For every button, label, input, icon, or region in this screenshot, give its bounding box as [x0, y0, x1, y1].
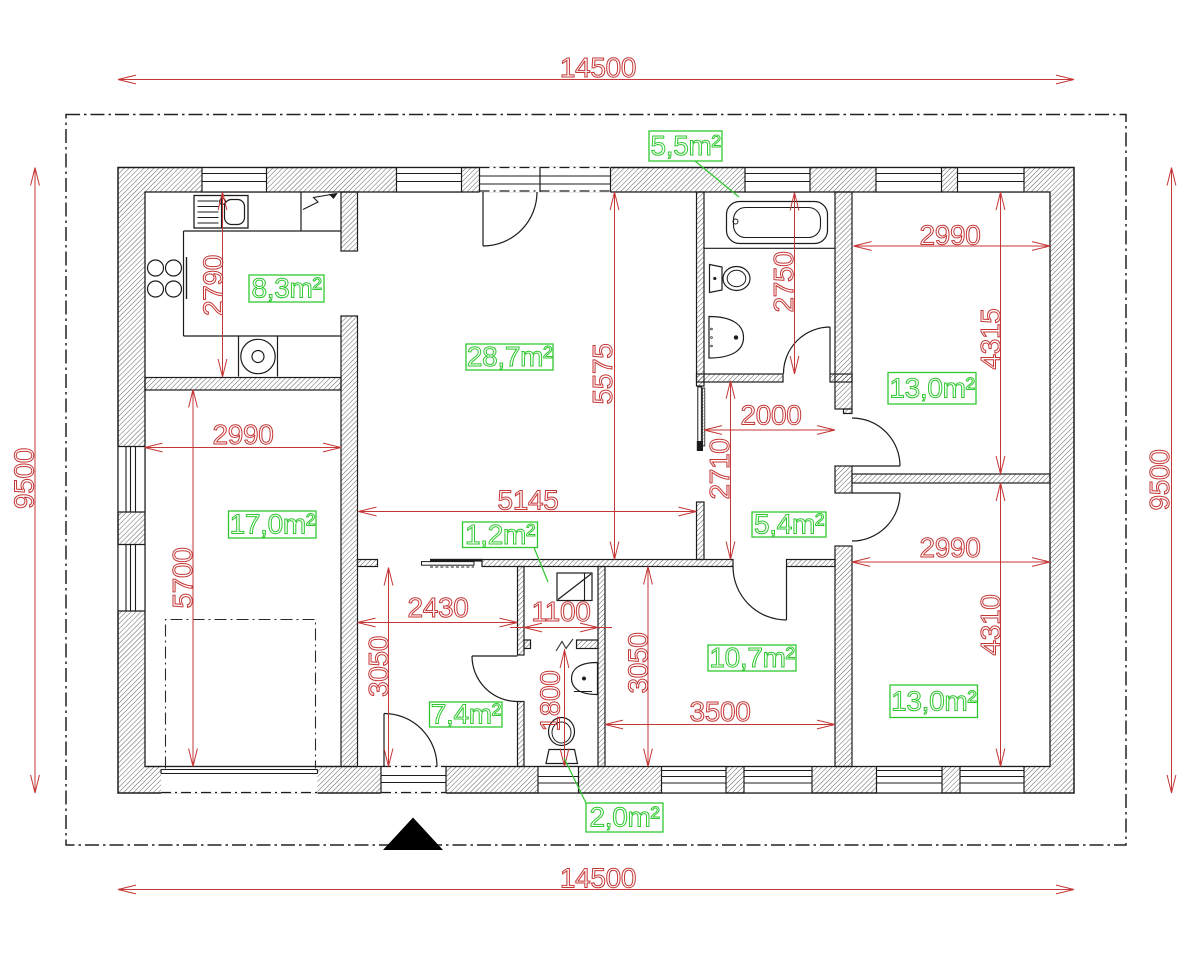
svg-text:9500: 9500 [1144, 449, 1175, 510]
svg-text:1,2m²: 1,2m² [465, 519, 535, 550]
svg-text:2990: 2990 [919, 532, 980, 563]
svg-text:4315: 4315 [975, 308, 1006, 369]
svg-text:5,5m²: 5,5m² [650, 130, 720, 161]
svg-text:5,4m²: 5,4m² [754, 509, 824, 540]
svg-text:14500: 14500 [560, 863, 636, 894]
svg-text:10,7m²: 10,7m² [709, 642, 794, 673]
svg-text:2,0m²: 2,0m² [589, 802, 659, 833]
svg-text:13,0m²: 13,0m² [889, 372, 974, 403]
svg-text:3050: 3050 [623, 632, 654, 693]
svg-text:5575: 5575 [587, 343, 618, 404]
svg-text:2430: 2430 [407, 592, 468, 623]
svg-text:17,0m²: 17,0m² [230, 509, 315, 540]
svg-text:14500: 14500 [560, 52, 636, 83]
svg-text:7,4m²: 7,4m² [431, 699, 501, 730]
svg-text:13,0m²: 13,0m² [891, 685, 976, 716]
svg-text:2990: 2990 [919, 220, 980, 251]
svg-text:2710: 2710 [704, 438, 735, 499]
svg-text:2000: 2000 [740, 400, 801, 431]
svg-text:1800: 1800 [535, 670, 566, 731]
svg-text:28,7m²: 28,7m² [467, 341, 552, 372]
svg-text:2750: 2750 [768, 251, 799, 312]
svg-text:3050: 3050 [363, 636, 394, 697]
svg-text:5700: 5700 [167, 547, 198, 608]
svg-text:8,3m²: 8,3m² [251, 273, 321, 304]
svg-text:3500: 3500 [689, 696, 750, 727]
svg-text:2790: 2790 [198, 255, 229, 316]
svg-text:1100: 1100 [531, 596, 590, 627]
svg-text:5145: 5145 [497, 485, 558, 516]
svg-text:9500: 9500 [9, 448, 40, 509]
svg-text:4310: 4310 [975, 594, 1006, 655]
svg-text:2990: 2990 [212, 419, 273, 450]
